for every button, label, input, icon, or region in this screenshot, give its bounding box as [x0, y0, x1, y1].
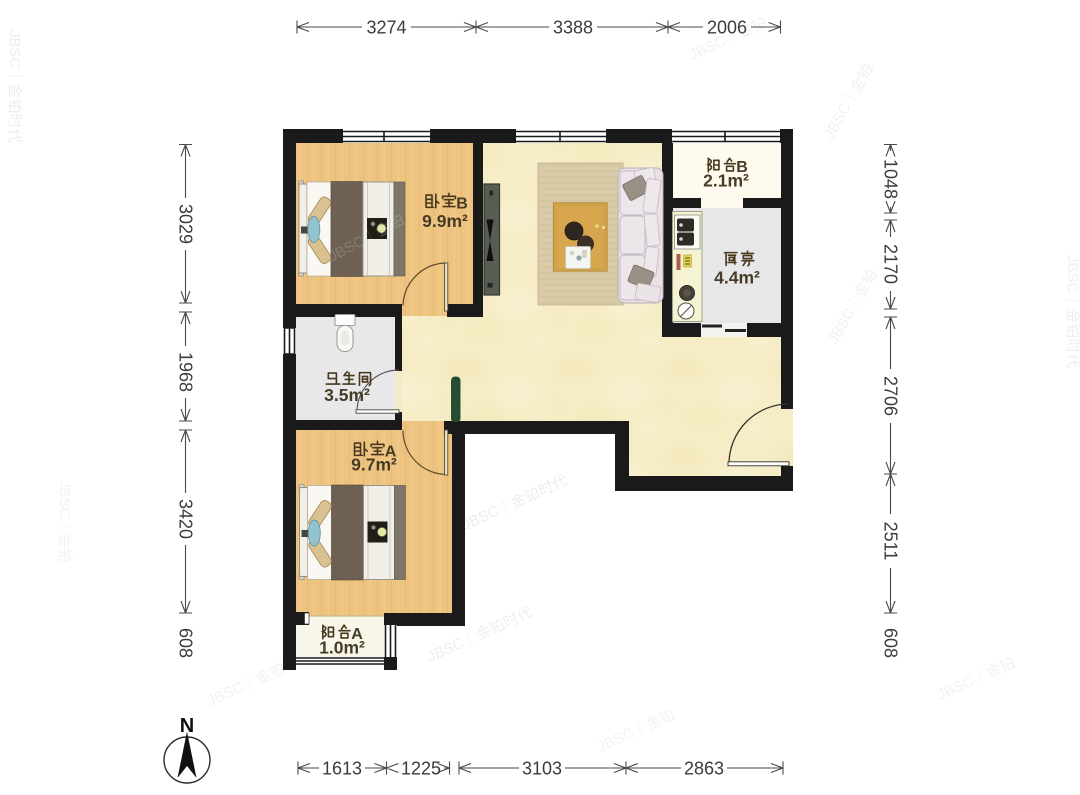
- svg-text:3.5m²: 3.5m²: [324, 385, 370, 405]
- svg-text:JBSC｜金铂时代: JBSC｜金铂时代: [6, 30, 23, 143]
- svg-text:2706: 2706: [881, 376, 901, 416]
- svg-text:9.9m²: 9.9m²: [422, 211, 468, 231]
- svg-text:2863: 2863: [684, 759, 724, 779]
- svg-text:JBSC｜金铂: JBSC｜金铂: [56, 480, 73, 563]
- svg-text:4.4m²: 4.4m²: [714, 268, 760, 288]
- svg-text:N: N: [180, 715, 194, 737]
- svg-text:B: B: [456, 196, 468, 213]
- svg-text:JBSC｜金铂时代: JBSC｜金铂时代: [1064, 255, 1080, 368]
- svg-text:1.0m²: 1.0m²: [319, 638, 365, 658]
- svg-text:608: 608: [176, 628, 196, 658]
- svg-text:608: 608: [881, 628, 901, 658]
- svg-text:9.7m²: 9.7m²: [351, 455, 397, 475]
- svg-text:3029: 3029: [176, 204, 196, 244]
- svg-text:1048: 1048: [881, 159, 901, 199]
- svg-text:1225: 1225: [401, 759, 441, 779]
- svg-text:3388: 3388: [553, 18, 593, 38]
- svg-text:1968: 1968: [176, 352, 196, 392]
- svg-text:3274: 3274: [366, 18, 406, 38]
- svg-text:2170: 2170: [881, 244, 901, 284]
- svg-text:3420: 3420: [176, 499, 196, 539]
- svg-text:2.1m²: 2.1m²: [703, 171, 749, 191]
- svg-text:2511: 2511: [881, 522, 901, 561]
- svg-text:1613: 1613: [322, 759, 362, 779]
- svg-text:3103: 3103: [522, 759, 562, 779]
